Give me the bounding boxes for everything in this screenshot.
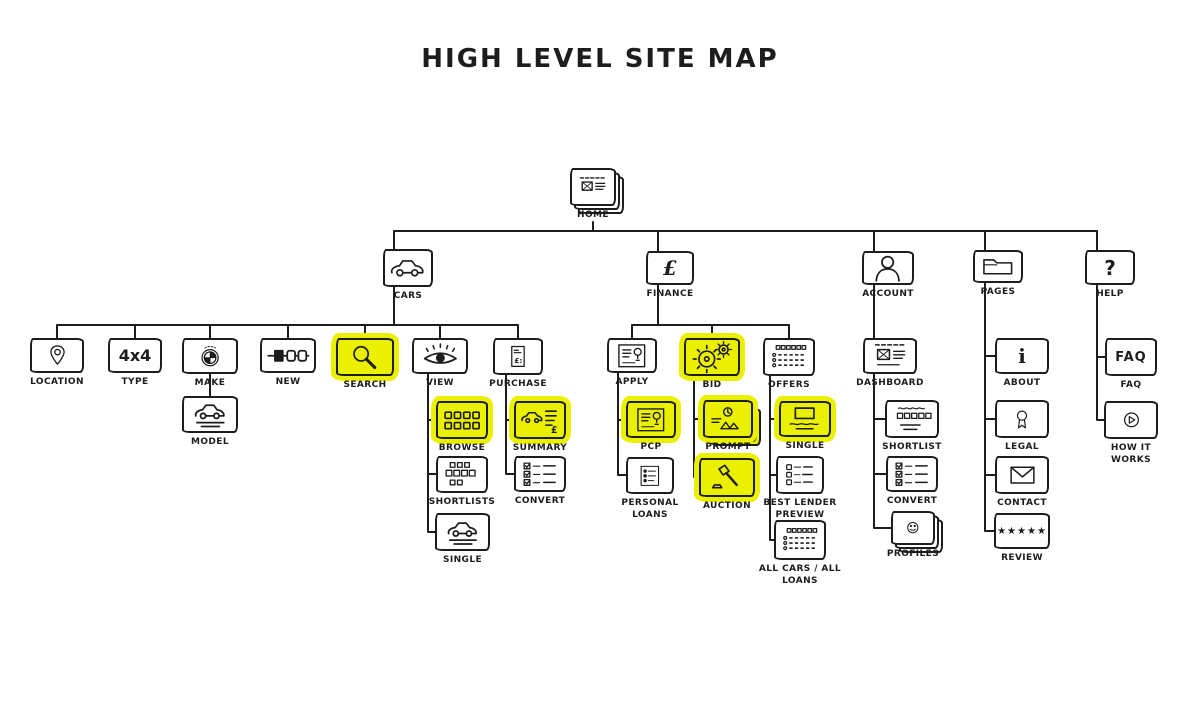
node-shortlist-account: SHORTLIST	[885, 400, 939, 454]
gears-icon	[690, 340, 735, 374]
node-model: MODEL	[182, 396, 238, 449]
envelope-icon	[1005, 462, 1040, 488]
how-it-works-label: HOW IT WORKS	[1111, 443, 1151, 466]
person-icon	[867, 253, 908, 284]
node-browse: BROWSE	[436, 401, 488, 455]
help-label: HELP	[1096, 289, 1124, 301]
summary-box: £	[514, 401, 566, 439]
node-type: 4x4 TYPE	[108, 338, 162, 389]
node-summary: £ SUMMARY	[514, 401, 566, 455]
node-account: ACCOUNT	[862, 251, 914, 301]
node-contact: CONTACT	[995, 456, 1049, 510]
auction-box	[699, 458, 755, 497]
node-best-lender-preview: BEST LENDER PREVIEW	[776, 456, 824, 521]
node-new: NEW	[260, 338, 316, 389]
summary-label: SUMMARY	[513, 443, 567, 455]
convert-account-box	[886, 456, 938, 492]
node-pcp: PCP	[626, 401, 676, 454]
checklist-icon	[519, 459, 560, 490]
shortlists-box	[436, 456, 488, 493]
node-single-cars: SINGLE	[435, 513, 490, 567]
profiles-box	[891, 511, 935, 545]
auction-label: AUCTION	[703, 501, 751, 513]
about-box: i	[995, 338, 1049, 374]
view-label: VIEW	[426, 378, 454, 390]
checkboxes-icon	[781, 461, 819, 489]
home-label: HOME	[577, 210, 609, 222]
shortlist-account-label: SHORTLIST	[882, 442, 942, 454]
type-box: 4x4	[108, 338, 162, 373]
shortlist-account-box	[885, 400, 939, 438]
pages-box	[973, 250, 1023, 283]
node-faq: FAQ FAQ	[1105, 338, 1157, 392]
question-mark-icon: ?	[1104, 256, 1116, 280]
node-pages: PAGES	[973, 250, 1023, 299]
checklist-icon	[891, 459, 932, 490]
car-icon	[388, 253, 428, 283]
about-label: ABOUT	[1004, 378, 1041, 390]
shortlist-icon	[891, 403, 934, 435]
five-stars-icon: ★★★★★	[997, 526, 1047, 537]
help-box: ?	[1085, 250, 1135, 285]
all-cars-all-loans-label: ALL CARS / ALL LOANS	[759, 564, 841, 587]
pages-label: PAGES	[981, 287, 1016, 299]
node-make: MAKE	[182, 338, 238, 390]
bullet-list-icon	[634, 464, 666, 488]
node-help: ? HELP	[1085, 250, 1135, 301]
table-icon	[768, 342, 809, 373]
faq-text-icon: FAQ	[1115, 350, 1147, 365]
pcp-label: PCP	[641, 442, 662, 454]
location-label: LOCATION	[30, 377, 84, 389]
node-offers: OFFERS	[763, 338, 815, 392]
account-label: ACCOUNT	[862, 289, 914, 301]
eye-icon	[418, 339, 463, 373]
cars-label: CARS	[394, 291, 423, 303]
location-box	[30, 338, 84, 373]
prompt-box	[703, 400, 753, 438]
finance-label: FINANCE	[646, 289, 693, 301]
form-bulb-icon	[612, 341, 652, 371]
node-bid: BID	[684, 338, 740, 392]
chain-links-icon	[266, 339, 311, 373]
apply-label: APPLY	[615, 377, 648, 389]
single-cars-label: SINGLE	[443, 555, 482, 567]
single-finance-box	[779, 401, 831, 437]
convert-cars-box	[514, 456, 566, 492]
convert-cars-label: CONVERT	[515, 496, 565, 508]
convert-account-label: CONVERT	[887, 496, 937, 508]
model-box	[182, 396, 238, 433]
node-how-it-works: HOW IT WORKS	[1104, 401, 1158, 466]
browser-content-icon	[869, 340, 912, 372]
make-box	[182, 338, 238, 374]
node-about: i ABOUT	[995, 338, 1049, 390]
svg-text:£:: £:	[515, 356, 523, 365]
connector-cars-children	[57, 287, 518, 338]
bid-label: BID	[703, 380, 722, 392]
node-home: HOME	[570, 168, 616, 222]
best-lender-preview-box	[776, 456, 824, 494]
magnifier-icon	[346, 343, 384, 371]
faq-label: FAQ	[1121, 380, 1142, 392]
pound-icon: £	[663, 256, 677, 280]
4x4-glyph-icon: 4x4	[119, 346, 152, 365]
faq-box: FAQ	[1105, 338, 1157, 376]
cars-box	[383, 249, 433, 287]
gavel-icon	[709, 464, 745, 491]
best-lender-preview-label: BEST LENDER PREVIEW	[763, 498, 836, 521]
new-label: NEW	[276, 377, 301, 389]
connector-help-branch	[1097, 285, 1105, 420]
shortlists-label: SHORTLISTS	[429, 497, 496, 509]
bid-box	[684, 338, 740, 376]
sitemap-diagram: HIGH LEVEL SITE MAP H	[0, 0, 1200, 720]
search-box	[336, 338, 394, 376]
car-lines-icon	[188, 398, 233, 432]
connector-pages-branch	[985, 283, 995, 531]
browse-box	[436, 401, 488, 439]
node-purchase: £: PURCHASE	[493, 338, 543, 391]
legal-box	[995, 400, 1049, 438]
finance-box: £	[646, 251, 694, 285]
type-label: TYPE	[121, 377, 148, 389]
profiles-label: PROFILES	[887, 549, 939, 561]
model-label: MODEL	[191, 437, 229, 449]
prompt-label: PROMPT	[705, 442, 750, 454]
purchase-box: £:	[493, 338, 543, 375]
account-box	[862, 251, 914, 285]
home-box	[570, 168, 616, 206]
node-apply: APPLY	[607, 338, 657, 389]
offers-label: OFFERS	[768, 380, 810, 392]
contact-label: CONTACT	[997, 498, 1047, 510]
info-icon: i	[1018, 344, 1026, 368]
browser-pages-icon	[575, 173, 611, 200]
svg-text:£: £	[551, 424, 557, 435]
node-prompt: PROMPT	[703, 400, 753, 454]
dashboard-label: DASHBOARD	[856, 378, 924, 390]
node-auction: AUCTION	[699, 458, 755, 513]
personal-loans-label: PERSONAL LOANS	[621, 498, 678, 521]
single-finance-label: SINGLE	[785, 441, 824, 453]
grid-icon	[441, 405, 482, 436]
purchase-label: PURCHASE	[489, 379, 547, 391]
panel-lines-icon	[784, 404, 825, 435]
ribbon-icon	[1008, 409, 1036, 430]
car-list-icon: £	[519, 405, 560, 436]
node-cars: CARS	[383, 249, 433, 303]
node-convert-cars: CONVERT	[514, 456, 566, 508]
pcp-box	[626, 401, 676, 438]
node-shortlists: SHORTLISTS	[436, 456, 488, 509]
how-it-works-box	[1104, 401, 1158, 439]
form-bulb-icon	[631, 405, 671, 435]
node-single-finance: SINGLE	[779, 401, 831, 453]
node-view: VIEW	[412, 338, 468, 390]
review-box: ★★★★★	[994, 513, 1050, 549]
node-profiles: PROFILES	[891, 511, 935, 561]
node-dashboard: DASHBOARD	[863, 338, 917, 390]
car-lines-icon	[441, 516, 485, 549]
apply-box	[607, 338, 657, 373]
node-finance: £ FINANCE	[646, 251, 694, 301]
view-box	[412, 338, 468, 374]
node-search: SEARCH	[336, 338, 394, 392]
cards-clock-icon	[708, 404, 748, 434]
thumbnails-icon	[441, 459, 482, 490]
connector-category-drops	[394, 231, 1097, 251]
single-cars-box	[435, 513, 490, 551]
all-cars-all-loans-box	[774, 520, 826, 560]
receipt-icon: £:	[501, 344, 534, 369]
map-pin-icon	[42, 344, 73, 367]
folder-icon	[978, 252, 1018, 282]
review-label: REVIEW	[1001, 553, 1043, 565]
personal-loans-box	[626, 457, 674, 494]
legal-label: LEGAL	[1005, 442, 1039, 454]
node-personal-loans: PERSONAL LOANS	[626, 457, 674, 521]
new-box	[260, 338, 316, 373]
node-all-cars-all-loans: ALL CARS / ALL LOANS	[774, 520, 826, 587]
node-review: ★★★★★ REVIEW	[994, 513, 1050, 565]
play-icon	[1117, 409, 1146, 431]
node-legal: LEGAL	[995, 400, 1049, 454]
smiley-card-icon	[900, 518, 926, 537]
contact-box	[995, 456, 1049, 494]
table-icon	[779, 525, 820, 556]
brand-logo-icon	[194, 344, 226, 368]
search-label: SEARCH	[343, 380, 386, 392]
node-convert-account: CONVERT	[886, 456, 938, 508]
make-label: MAKE	[195, 378, 226, 390]
browse-label: BROWSE	[439, 443, 485, 455]
dashboard-box	[863, 338, 917, 374]
offers-box	[763, 338, 815, 376]
node-location: LOCATION	[30, 338, 84, 389]
